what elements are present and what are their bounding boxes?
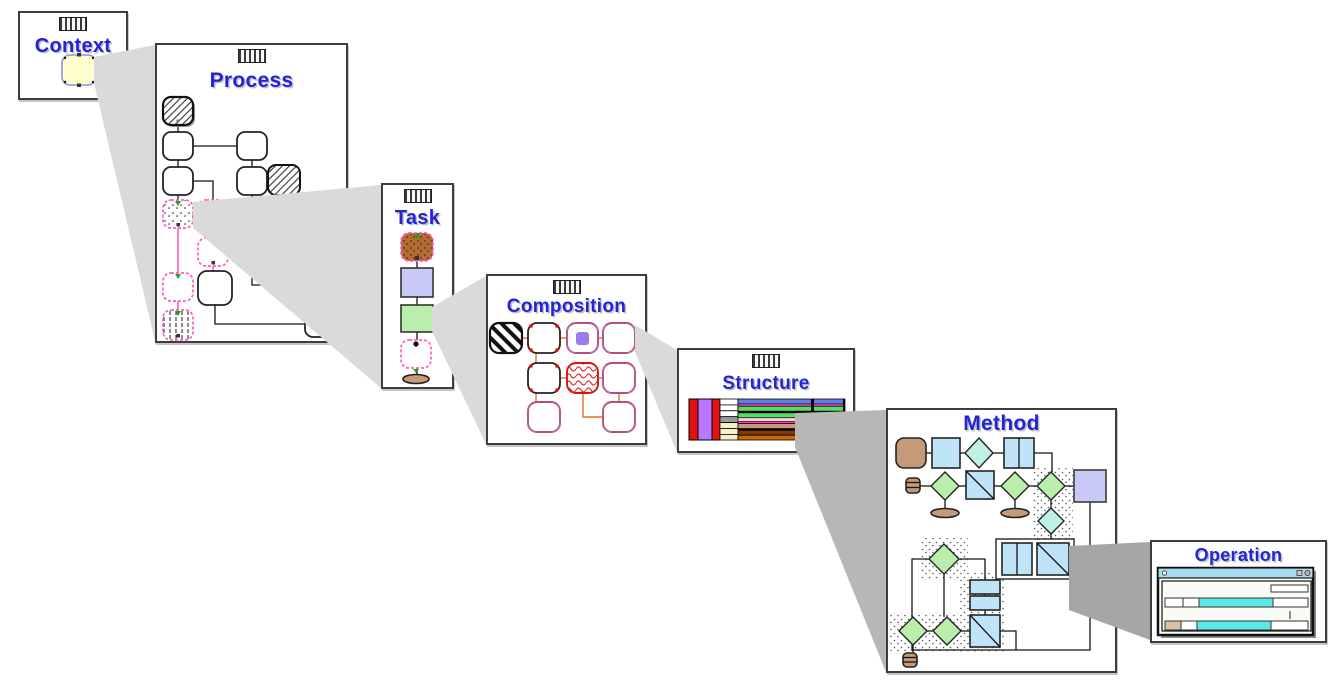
composition-node-selected bbox=[567, 323, 598, 353]
composition-diagram bbox=[486, 274, 647, 445]
structure-diagram bbox=[677, 348, 855, 453]
window-composition: Composition bbox=[486, 274, 647, 445]
mini-progress-bar bbox=[1197, 621, 1271, 630]
context-diagram bbox=[18, 11, 128, 100]
process-diamond-box bbox=[305, 238, 337, 270]
datastore-node bbox=[906, 478, 920, 493]
cascade-diagram: Context Process bbox=[0, 0, 1338, 687]
task-nodes bbox=[401, 233, 433, 384]
window-structure: Structure bbox=[677, 348, 855, 453]
operation-diagram bbox=[1150, 540, 1327, 643]
window-process: Process bbox=[155, 43, 348, 343]
window-context: Context bbox=[18, 11, 128, 100]
zoom-box-icon bbox=[1297, 571, 1302, 576]
mini-progress-bar bbox=[1199, 598, 1273, 607]
context-root-node bbox=[62, 53, 96, 87]
method-diagram bbox=[886, 408, 1117, 673]
window-operation: Operation bbox=[1150, 540, 1327, 643]
close-box-icon bbox=[1162, 571, 1166, 575]
structure-bars bbox=[689, 399, 845, 440]
task-diagram bbox=[381, 183, 454, 389]
datastore-node bbox=[903, 653, 917, 667]
process-diagram bbox=[155, 43, 348, 343]
mini-field bbox=[1271, 585, 1308, 592]
mini-window-titlebar bbox=[1158, 568, 1313, 578]
collapse-box-icon bbox=[1305, 570, 1310, 575]
mini-window bbox=[1158, 568, 1316, 638]
window-task: Task bbox=[381, 183, 454, 389]
window-method: Method bbox=[886, 408, 1117, 673]
